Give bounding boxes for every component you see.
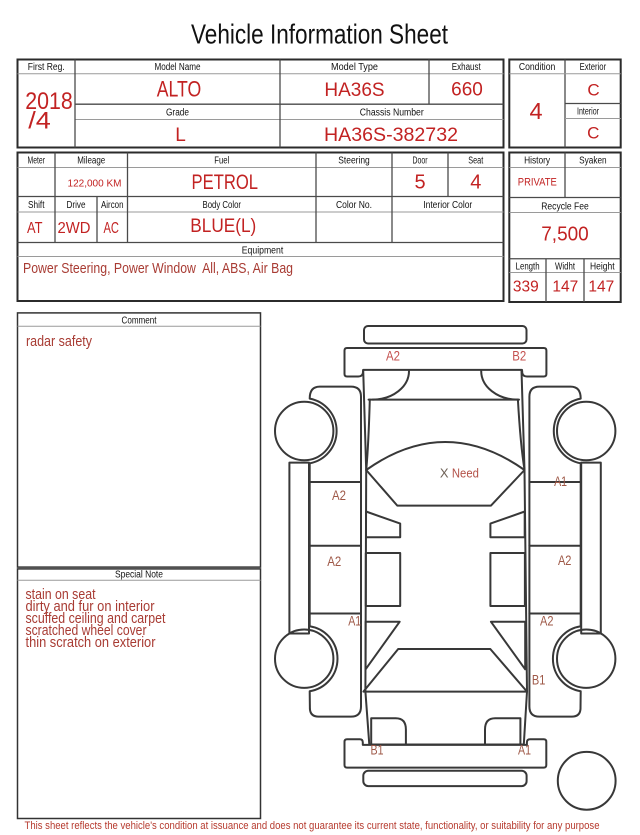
svg-text:PRIVATE: PRIVATE [518, 177, 557, 189]
svg-text:C: C [587, 81, 599, 100]
svg-text:Comment: Comment [122, 315, 157, 326]
svg-text:339: 339 [513, 278, 539, 295]
svg-text:A1: A1 [518, 742, 531, 758]
svg-text:Length: Length [516, 262, 540, 273]
svg-text:Interior: Interior [577, 106, 599, 117]
svg-text:thin scratch on exterior: thin scratch on exterior [26, 634, 156, 651]
svg-text:Vehicle Information Sheet: Vehicle Information Sheet [191, 19, 448, 50]
svg-text:Model Name: Model Name [155, 62, 201, 73]
svg-text:Equipment: Equipment [242, 245, 284, 256]
svg-text:ALTO: ALTO [157, 76, 202, 101]
svg-text:B1: B1 [532, 672, 546, 688]
svg-text:Widht: Widht [555, 262, 575, 273]
svg-text:147: 147 [588, 278, 614, 295]
svg-text:Body Color: Body Color [203, 200, 242, 211]
svg-text:Chassis Number: Chassis Number [360, 108, 425, 119]
svg-text:PETROL: PETROL [192, 171, 259, 194]
svg-text:L: L [175, 125, 186, 146]
svg-text:Fuel: Fuel [214, 156, 229, 167]
svg-text:Height: Height [590, 262, 615, 273]
svg-text:B1: B1 [371, 742, 384, 758]
svg-text:Special Note: Special Note [115, 570, 163, 581]
svg-text:Exterior: Exterior [580, 62, 607, 73]
svg-text:122,000 KM: 122,000 KM [68, 179, 122, 190]
svg-text:radar safety: radar safety [26, 333, 92, 350]
svg-text:X: X [440, 465, 449, 480]
svg-text:/4: /4 [28, 107, 51, 134]
svg-text:This sheet reflects the vehicl: This sheet reflects the vehicle's condit… [25, 820, 600, 832]
svg-text:Need: Need [452, 465, 479, 480]
svg-text:C: C [587, 123, 599, 142]
svg-text:First Reg.: First Reg. [28, 62, 65, 73]
svg-text:Power Steering, Power Window: Power Steering, Power Window All, ABS, A… [23, 260, 293, 277]
svg-text:HA36S-382732: HA36S-382732 [324, 125, 458, 146]
svg-text:AT: AT [27, 220, 43, 237]
svg-text:4: 4 [529, 98, 542, 124]
svg-text:Color No.: Color No. [336, 200, 372, 211]
svg-text:2WD: 2WD [58, 220, 91, 237]
svg-text:Model Type: Model Type [331, 62, 378, 73]
svg-text:Exhaust: Exhaust [452, 62, 481, 73]
svg-text:Aircon: Aircon [101, 200, 124, 211]
svg-text:Condition: Condition [519, 62, 556, 73]
svg-text:A1: A1 [554, 473, 567, 489]
svg-text:Interior Color: Interior Color [423, 200, 473, 211]
svg-text:B2: B2 [512, 348, 526, 364]
svg-text:Recycle Fee: Recycle Fee [541, 202, 589, 213]
svg-text:A2: A2 [386, 348, 400, 364]
svg-text:A1: A1 [348, 613, 361, 629]
svg-text:BLUE(L): BLUE(L) [190, 216, 256, 237]
svg-text:4: 4 [470, 171, 481, 193]
svg-text:Drive: Drive [67, 200, 86, 211]
svg-text:Mileage: Mileage [77, 156, 105, 167]
svg-text:A2: A2 [558, 552, 572, 568]
svg-text:HA36S: HA36S [324, 80, 384, 101]
svg-text:Syaken: Syaken [579, 156, 607, 167]
svg-text:A2: A2 [540, 613, 554, 629]
svg-text:A2: A2 [327, 553, 341, 569]
svg-text:AC: AC [103, 220, 119, 237]
svg-text:Steering: Steering [338, 156, 370, 167]
svg-text:5: 5 [414, 171, 425, 193]
svg-text:Door: Door [413, 156, 428, 167]
svg-text:A2: A2 [332, 487, 346, 503]
svg-text:Shift: Shift [28, 200, 45, 211]
svg-text:Seat: Seat [468, 156, 483, 167]
svg-text:7,500: 7,500 [541, 223, 589, 246]
svg-text:History: History [524, 156, 550, 167]
svg-text:147: 147 [552, 278, 578, 295]
svg-text:Grade: Grade [166, 108, 189, 119]
svg-text:660: 660 [451, 80, 483, 101]
svg-text:Meter: Meter [28, 156, 46, 167]
